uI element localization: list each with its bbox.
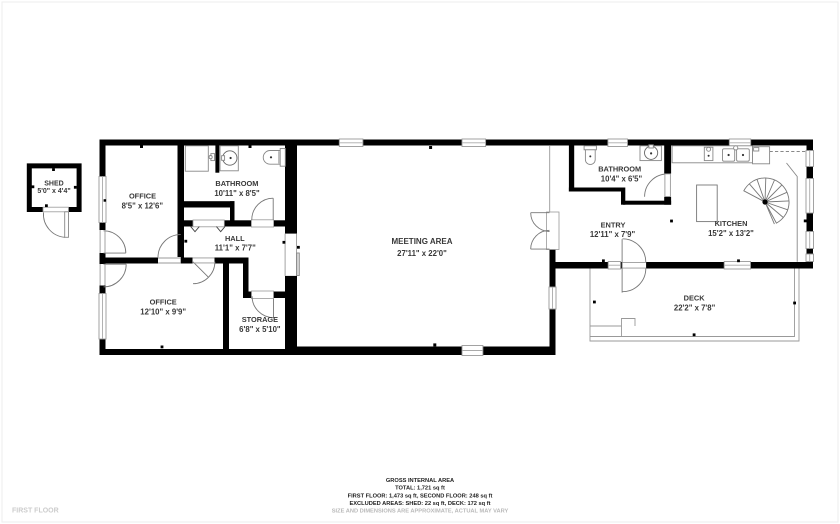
- svg-text:KITCHEN: KITCHEN: [715, 219, 748, 228]
- svg-text:HALL: HALL: [225, 234, 245, 243]
- svg-text:MEETING AREA: MEETING AREA: [391, 237, 452, 246]
- svg-text:BATHROOM: BATHROOM: [598, 165, 641, 174]
- svg-text:6'8" x 5'10": 6'8" x 5'10": [239, 325, 281, 334]
- svg-text:27'11" x 22'0": 27'11" x 22'0": [397, 249, 447, 258]
- svg-text:10'11" x 8'5": 10'11" x 8'5": [214, 189, 260, 198]
- svg-text:FIRST FLOOR: FIRST FLOOR: [12, 508, 59, 515]
- svg-text:SHED: SHED: [44, 180, 63, 187]
- svg-text:STORAGE: STORAGE: [242, 315, 278, 324]
- svg-text:11'1" x 7'7": 11'1" x 7'7": [215, 244, 256, 253]
- svg-text:22'2" x 7'8": 22'2" x 7'8": [674, 304, 716, 313]
- svg-text:EXCLUDED AREAS: SHED: 22 sq ft: EXCLUDED AREAS: SHED: 22 sq ft, DECK: 17…: [349, 501, 490, 507]
- svg-text:GROSS INTERNAL AREA: GROSS INTERNAL AREA: [386, 478, 454, 484]
- svg-text:TOTAL: 1,721 sq ft: TOTAL: 1,721 sq ft: [395, 486, 445, 492]
- svg-text:FIRST FLOOR: 1,473 sq ft, SECO: FIRST FLOOR: 1,473 sq ft, SECOND FLOOR: …: [348, 494, 493, 500]
- svg-text:OFFICE: OFFICE: [129, 192, 156, 201]
- svg-text:15'2" x 13'2": 15'2" x 13'2": [708, 229, 754, 238]
- svg-text:8'5" x 12'6": 8'5" x 12'6": [122, 201, 164, 210]
- svg-text:ENTRY: ENTRY: [601, 220, 626, 229]
- svg-text:5'0" x 4'4": 5'0" x 4'4": [37, 188, 70, 195]
- svg-text:10'4" x 6'5": 10'4" x 6'5": [601, 174, 643, 183]
- svg-text:OFFICE: OFFICE: [150, 298, 177, 307]
- svg-text:SIZE AND DIMENSIONS ARE APPROX: SIZE AND DIMENSIONS ARE APPROXIMATE, ACT…: [332, 508, 509, 514]
- svg-text:12'10" x 9'9": 12'10" x 9'9": [140, 307, 186, 316]
- svg-text:12'11" x 7'9": 12'11" x 7'9": [590, 230, 636, 239]
- svg-text:DECK: DECK: [684, 294, 706, 303]
- svg-text:BATHROOM: BATHROOM: [215, 179, 258, 188]
